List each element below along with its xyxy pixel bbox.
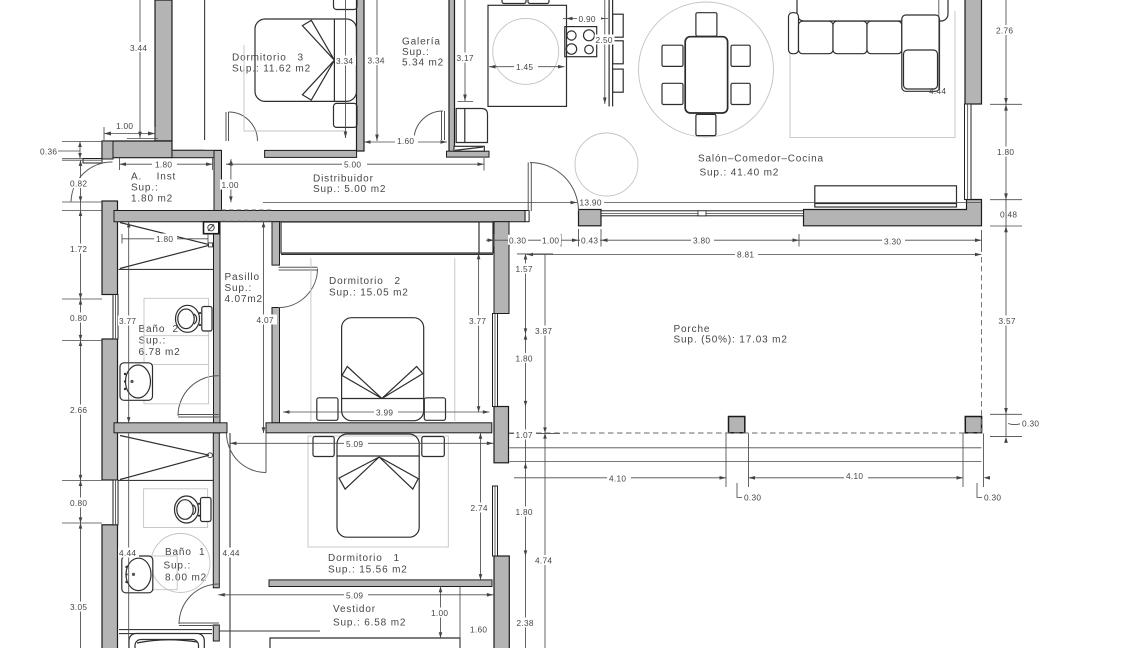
svg-text:Sup.:: Sup.: [402, 47, 430, 58]
svg-text:3.34: 3.34 [336, 56, 353, 66]
svg-text:Sup.: 41.40 m2: Sup.: 41.40 m2 [700, 168, 780, 179]
svg-text:Sup.: 15.56 m2: Sup.: 15.56 m2 [328, 565, 408, 576]
svg-text:Pasillo: Pasillo [225, 272, 260, 283]
svg-text:2.66: 2.66 [70, 405, 87, 415]
svg-text:4.07: 4.07 [257, 315, 274, 325]
svg-text:3.99: 3.99 [376, 408, 393, 418]
svg-text:Distribuidor: Distribuidor [313, 174, 374, 185]
svg-text:1.60: 1.60 [397, 136, 414, 146]
svg-text:3.30: 3.30 [884, 237, 901, 247]
svg-text:Sup.:: Sup.: [225, 283, 253, 294]
svg-text:Sup.: 15.05 m2: Sup.: 15.05 m2 [329, 288, 409, 299]
svg-text:1.45: 1.45 [516, 62, 533, 72]
svg-text:4.44: 4.44 [119, 548, 136, 558]
svg-text:1.60: 1.60 [470, 625, 487, 635]
svg-text:Baño 2: Baño 2 [139, 324, 179, 335]
svg-text:1.80: 1.80 [516, 507, 533, 517]
svg-text:5.09: 5.09 [346, 439, 363, 449]
svg-text:0.48: 0.48 [1000, 210, 1017, 220]
svg-text:3.44: 3.44 [130, 43, 147, 53]
svg-text:0.82: 0.82 [70, 179, 87, 189]
svg-text:1.80 m2: 1.80 m2 [131, 194, 173, 205]
svg-text:Sup.:: Sup.: [131, 183, 159, 194]
svg-text:5.34 m2: 5.34 m2 [402, 58, 444, 69]
svg-text:0.36: 0.36 [40, 147, 57, 157]
svg-text:Vestidor: Vestidor [333, 604, 376, 615]
svg-text:Sup.:: Sup.: [139, 336, 167, 347]
svg-text:4.10: 4.10 [609, 474, 626, 484]
svg-text:4.07m2: 4.07m2 [225, 294, 263, 305]
svg-text:4.44: 4.44 [929, 86, 946, 96]
svg-text:3.05: 3.05 [70, 602, 87, 612]
svg-text:3.77: 3.77 [119, 316, 136, 326]
svg-text:0.30: 0.30 [744, 493, 761, 503]
svg-text:5.00: 5.00 [344, 160, 361, 170]
svg-text:4.10: 4.10 [846, 471, 863, 481]
svg-text:Galería: Galería [402, 37, 441, 48]
svg-text:4.44: 4.44 [223, 548, 240, 558]
svg-text:1.80: 1.80 [997, 147, 1014, 157]
svg-text:1.00: 1.00 [116, 121, 133, 131]
svg-text:3.57: 3.57 [999, 316, 1016, 326]
svg-text:8.81: 8.81 [737, 250, 754, 260]
svg-text:0.80: 0.80 [70, 313, 87, 323]
svg-text:Sup.: 5.00 m2: Sup.: 5.00 m2 [313, 184, 386, 195]
svg-text:1.57: 1.57 [516, 264, 533, 274]
svg-text:1.80: 1.80 [516, 354, 533, 364]
svg-text:Porche: Porche [674, 324, 711, 335]
svg-text:Dormitorio 3: Dormitorio 3 [232, 53, 304, 64]
svg-text:0.43: 0.43 [581, 235, 598, 245]
svg-text:0.30: 0.30 [509, 235, 526, 245]
svg-text:2.76: 2.76 [996, 26, 1013, 36]
svg-text:2.74: 2.74 [471, 503, 488, 513]
svg-text:0.80: 0.80 [70, 498, 87, 508]
svg-text:0.90: 0.90 [579, 14, 596, 24]
svg-text:1.00: 1.00 [431, 608, 448, 618]
svg-text:6.78 m2: 6.78 m2 [139, 347, 181, 358]
svg-text:5.09: 5.09 [346, 591, 363, 601]
svg-text:3.87: 3.87 [535, 326, 552, 336]
svg-text:1.80: 1.80 [156, 234, 173, 244]
svg-text:2.38: 2.38 [517, 618, 534, 628]
svg-text:3.17: 3.17 [457, 53, 474, 63]
svg-text:3.77: 3.77 [469, 316, 486, 326]
svg-text:Sup.: 6.58 m2: Sup.: 6.58 m2 [333, 618, 406, 629]
svg-text:1.07: 1.07 [516, 430, 533, 440]
svg-text:13.90: 13.90 [580, 198, 602, 208]
svg-text:2.50: 2.50 [596, 35, 613, 45]
svg-text:3.34: 3.34 [368, 56, 385, 66]
svg-text:Dormitorio 2: Dormitorio 2 [329, 276, 401, 287]
svg-text:4.74: 4.74 [535, 556, 552, 566]
svg-text:3.80: 3.80 [693, 235, 710, 245]
svg-text:1.00: 1.00 [222, 180, 239, 190]
svg-text:1.80: 1.80 [155, 160, 172, 170]
svg-text:8.00 m2: 8.00 m2 [165, 573, 207, 584]
svg-text:A. Inst: A. Inst [131, 172, 176, 183]
svg-text:Salón–Comedor–Cocina: Salón–Comedor–Cocina [698, 154, 824, 165]
svg-text:1.72: 1.72 [70, 244, 87, 254]
svg-text:Sup. (50%): 17.03 m2: Sup. (50%): 17.03 m2 [674, 335, 788, 346]
svg-text:Dormitorio 1: Dormitorio 1 [328, 553, 400, 564]
svg-text:0.30: 0.30 [984, 493, 1001, 503]
svg-text:1.00: 1.00 [542, 235, 559, 245]
svg-text:0.30: 0.30 [1022, 419, 1039, 429]
